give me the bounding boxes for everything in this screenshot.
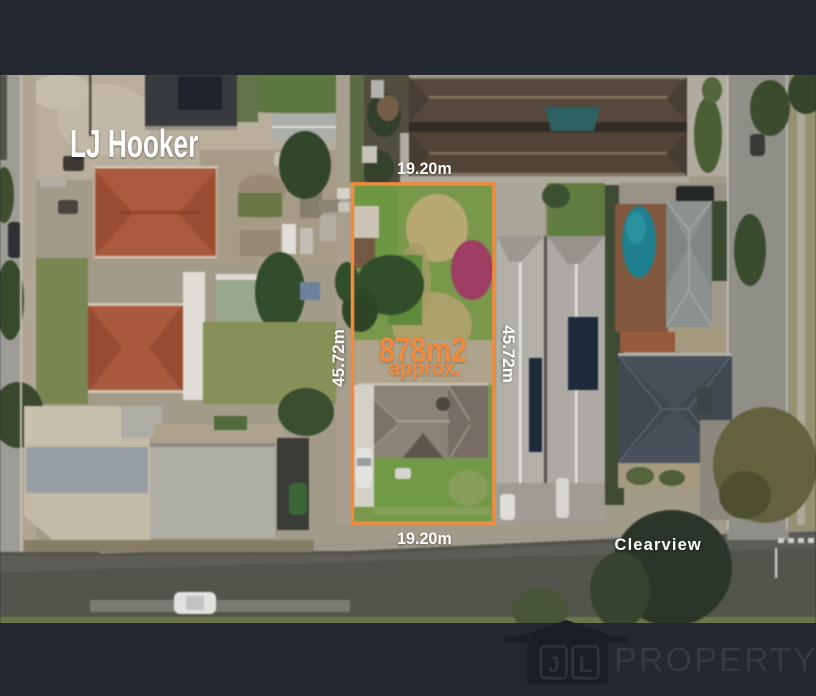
svg-text:L: L bbox=[579, 652, 592, 677]
svg-text:PROPERTY: PROPERTY bbox=[614, 641, 816, 678]
svg-text:J: J bbox=[548, 652, 560, 677]
